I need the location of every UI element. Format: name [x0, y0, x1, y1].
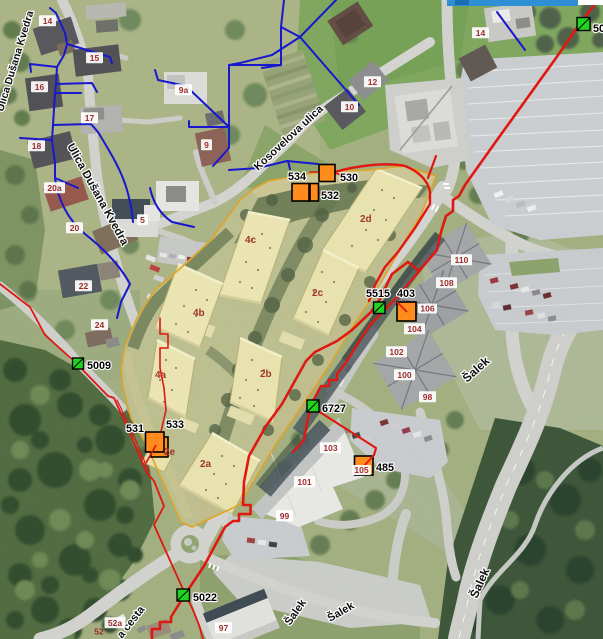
svg-text:99: 99 [280, 511, 290, 521]
svg-text:531: 531 [126, 423, 144, 435]
svg-text:16: 16 [35, 82, 45, 92]
svg-text:104: 104 [407, 324, 421, 334]
svg-text:97: 97 [219, 623, 229, 633]
svg-text:17: 17 [85, 113, 95, 123]
svg-text:533: 533 [166, 419, 184, 431]
svg-text:101: 101 [297, 477, 311, 487]
svg-text:20a: 20a [47, 183, 61, 193]
svg-text:15: 15 [90, 53, 100, 63]
svg-text:105: 105 [354, 465, 368, 475]
svg-text:18: 18 [32, 141, 42, 151]
svg-text:14: 14 [43, 16, 53, 26]
svg-text:5009: 5009 [87, 360, 111, 372]
svg-text:534: 534 [288, 171, 306, 183]
svg-text:5515: 5515 [366, 288, 390, 300]
svg-text:24: 24 [95, 320, 105, 330]
svg-text:10: 10 [345, 102, 355, 112]
svg-text:108: 108 [439, 278, 453, 288]
svg-text:110: 110 [455, 255, 469, 265]
svg-text:98: 98 [423, 392, 433, 402]
svg-text:485: 485 [376, 462, 394, 474]
svg-text:403: 403 [397, 288, 415, 300]
svg-text:532: 532 [321, 190, 339, 202]
svg-text:22: 22 [79, 281, 89, 291]
svg-text:20: 20 [70, 223, 80, 233]
svg-text:5: 5 [140, 215, 145, 225]
svg-text:12: 12 [368, 77, 378, 87]
svg-text:2e: 2e [164, 447, 176, 458]
svg-text:14: 14 [476, 28, 486, 38]
svg-text:530: 530 [340, 172, 358, 184]
svg-text:52: 52 [94, 627, 104, 637]
svg-text:100: 100 [397, 370, 411, 380]
svg-text:9a: 9a [179, 85, 189, 95]
svg-text:5022: 5022 [193, 592, 217, 604]
svg-text:6727: 6727 [322, 403, 346, 415]
svg-text:103: 103 [323, 443, 337, 453]
svg-text:9: 9 [204, 140, 209, 150]
svg-text:50: 50 [593, 23, 603, 35]
svg-text:106: 106 [420, 304, 434, 314]
svg-text:52a: 52a [108, 618, 122, 628]
svg-text:102: 102 [389, 347, 403, 357]
